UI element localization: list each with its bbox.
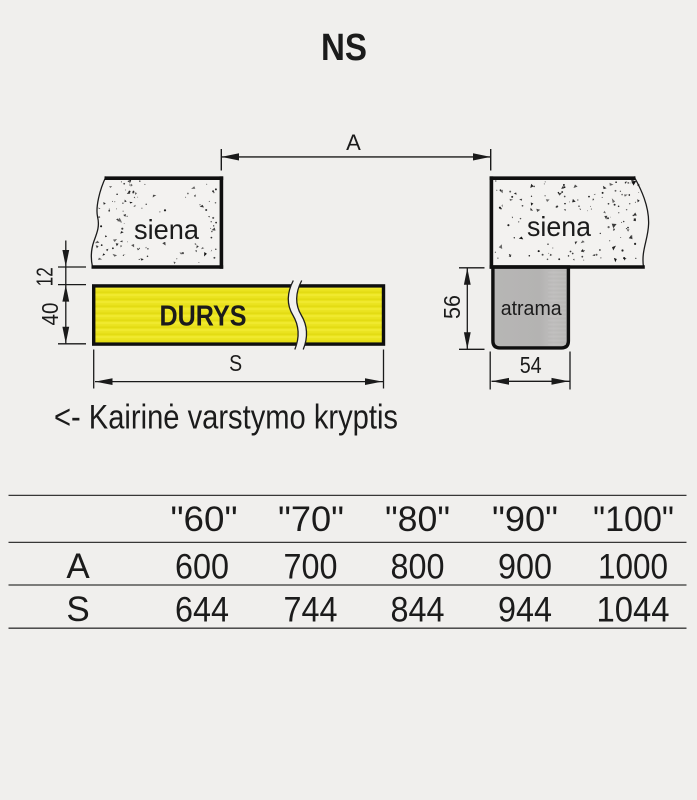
svg-text:1044: 1044 bbox=[597, 591, 670, 630]
svg-text:944: 944 bbox=[498, 591, 552, 630]
svg-text:"80": "80" bbox=[385, 500, 450, 539]
svg-text:siena: siena bbox=[134, 214, 199, 245]
svg-text:NS: NS bbox=[321, 27, 367, 69]
svg-text:844: 844 bbox=[391, 591, 445, 630]
svg-text:atrama: atrama bbox=[501, 297, 563, 320]
svg-text:<- Kairinė varstymo kryptis: <- Kairinė varstymo kryptis bbox=[54, 399, 398, 437]
svg-text:40: 40 bbox=[37, 303, 63, 326]
svg-text:900: 900 bbox=[498, 548, 552, 587]
svg-text:644: 644 bbox=[175, 591, 229, 630]
svg-text:DURYS: DURYS bbox=[160, 301, 247, 333]
svg-text:siena: siena bbox=[527, 211, 591, 242]
svg-text:"70": "70" bbox=[278, 500, 344, 539]
svg-text:800: 800 bbox=[391, 548, 445, 587]
svg-text:56: 56 bbox=[439, 295, 465, 319]
svg-text:744: 744 bbox=[284, 591, 338, 630]
svg-text:54: 54 bbox=[520, 352, 542, 378]
svg-text:1000: 1000 bbox=[598, 548, 668, 587]
svg-text:A: A bbox=[346, 130, 361, 155]
svg-text:12: 12 bbox=[32, 267, 58, 286]
svg-text:"60": "60" bbox=[171, 500, 238, 539]
svg-text:A: A bbox=[66, 547, 90, 586]
svg-text:S: S bbox=[66, 590, 89, 629]
svg-text:600: 600 bbox=[175, 548, 229, 587]
svg-text:S: S bbox=[229, 350, 242, 376]
svg-text:"90": "90" bbox=[492, 500, 558, 539]
svg-text:700: 700 bbox=[284, 548, 338, 587]
svg-text:"100": "100" bbox=[593, 500, 674, 539]
